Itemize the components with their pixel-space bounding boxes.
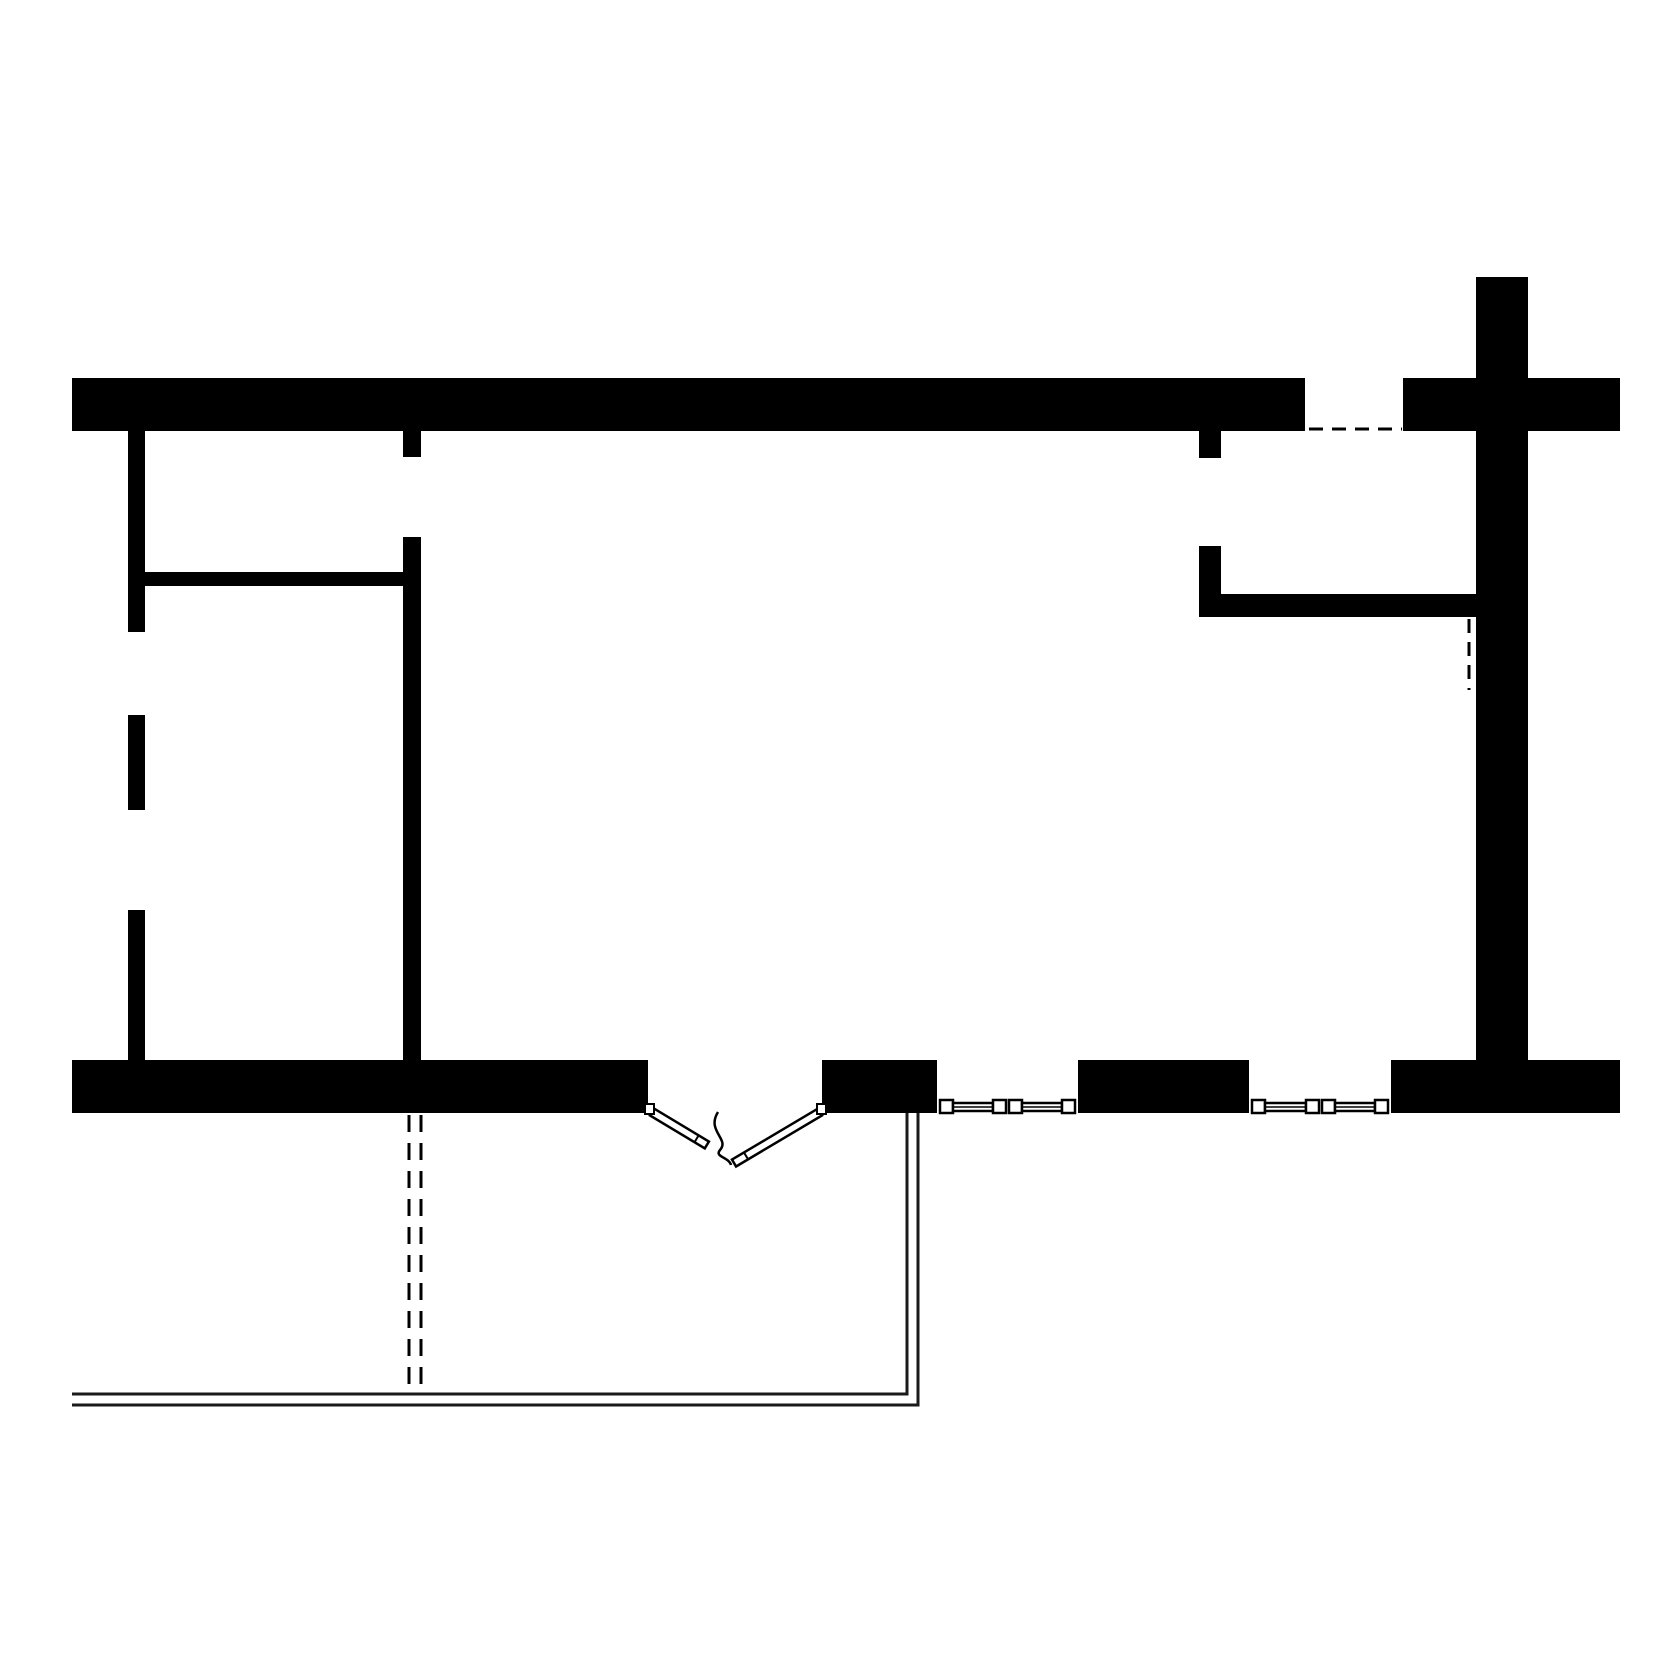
left-wall-upper	[128, 431, 145, 632]
window-2-mid-cap-right	[1322, 1100, 1335, 1113]
door-hinge-left	[645, 1104, 654, 1114]
window-1-mid-cap-left	[993, 1100, 1006, 1113]
window-1-mid-cap-right	[1009, 1100, 1022, 1113]
closet-wall-vertical	[1199, 546, 1221, 617]
right-wall	[1476, 277, 1528, 1060]
deck-edge-outer	[72, 1113, 918, 1405]
partition-stub-top	[403, 431, 421, 457]
bottom-wall-mid-a	[822, 1060, 937, 1113]
window-2-mid-cap-left	[1306, 1100, 1319, 1113]
door-leaf-left	[650, 1109, 709, 1149]
floor-plan-canvas	[0, 0, 1680, 1680]
left-wall-middle	[128, 715, 145, 810]
bottom-wall-right	[1391, 1060, 1620, 1113]
floor-plan-page	[0, 0, 1680, 1680]
window-1-end-cap-right	[1062, 1100, 1075, 1113]
left-wall-lower	[128, 910, 145, 1060]
bottom-wall-mid-b	[1078, 1060, 1249, 1113]
top-wall	[72, 378, 1305, 431]
deck-edge-inner	[72, 1113, 907, 1394]
window-2-end-cap-left	[1252, 1100, 1265, 1113]
hall-stub-top	[1199, 431, 1221, 458]
door-hinge-right	[817, 1104, 826, 1114]
window-1-end-cap-left	[940, 1100, 953, 1113]
closet-wall-horizontal	[1221, 594, 1476, 617]
window-2-end-cap-right	[1375, 1100, 1388, 1113]
door-leaf-right	[732, 1109, 822, 1167]
floor-plan-shapes	[72, 277, 1620, 1405]
door-meeting-curve	[715, 1112, 731, 1165]
partition-horizontal-left	[145, 572, 403, 586]
partition-vertical-main	[403, 537, 421, 1060]
bottom-wall-left	[72, 1060, 648, 1113]
